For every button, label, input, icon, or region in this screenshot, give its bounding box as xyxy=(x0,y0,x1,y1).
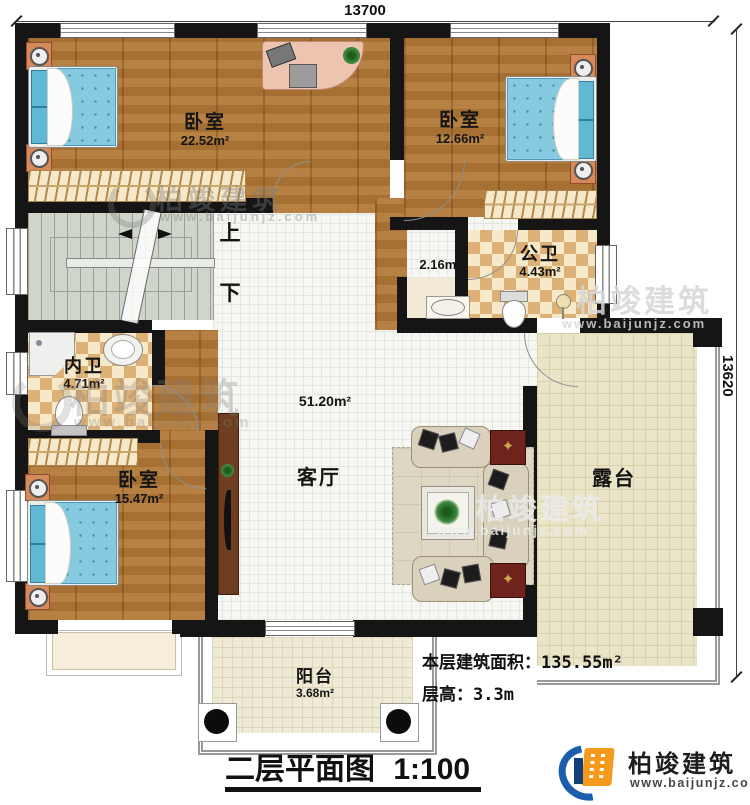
title-underline xyxy=(225,787,481,792)
public-bath-name: 公卫 xyxy=(485,244,595,265)
window xyxy=(6,352,28,395)
wall xyxy=(15,620,58,634)
nightstand-icon xyxy=(25,474,50,501)
wall xyxy=(597,23,610,245)
balcony-name: 阳台 xyxy=(283,667,347,687)
window xyxy=(6,490,28,582)
end-table-icon: ✦ xyxy=(490,430,526,465)
wall xyxy=(390,23,404,160)
living-name-label: 客厅 xyxy=(286,467,352,490)
bedroom1-area: 22.52m² xyxy=(150,134,260,149)
bedroom2-label: 卧室 12.66m² xyxy=(405,110,515,147)
wardrobe-icon xyxy=(28,438,138,466)
tv-icon xyxy=(224,490,231,550)
wall xyxy=(390,217,468,230)
window xyxy=(6,228,28,295)
bay-window-seat xyxy=(52,632,176,670)
brand-url: www.baijunjz.com xyxy=(630,776,750,790)
wall-column xyxy=(693,608,723,636)
column-icon xyxy=(380,703,419,742)
bedroom1-label: 卧室 22.52m² xyxy=(150,112,260,149)
stairs-arrow-right-icon xyxy=(158,229,172,239)
plant-icon xyxy=(434,499,460,525)
stairs-up-label: 上 xyxy=(218,222,242,246)
wardrobe-icon xyxy=(484,190,597,219)
floor-area-value: 135.55m² xyxy=(541,653,623,673)
floor-height-line: 层高：3.3m xyxy=(422,680,514,705)
stairs-arrow-left-icon xyxy=(118,229,132,239)
dimension-line-right xyxy=(736,30,737,678)
plant-icon xyxy=(343,47,360,64)
floor-area-label: 本层建筑面积： xyxy=(422,653,541,672)
window xyxy=(265,621,355,636)
bedroom3-area: 15.47m² xyxy=(84,492,194,507)
wall xyxy=(152,330,165,385)
private-bath-label: 内卫 4.71m² xyxy=(29,356,139,392)
balcony-label: 阳台 3.68m² xyxy=(283,667,347,700)
balcony-area: 3.68m² xyxy=(283,687,347,701)
brand-building-icon xyxy=(581,748,614,786)
nightstand-icon xyxy=(25,583,50,610)
floor-area-line: 本层建筑面积：135.55m² xyxy=(422,648,623,673)
public-bath-label: 公卫 4.43m² xyxy=(485,244,595,280)
wall xyxy=(353,620,537,637)
private-bath-name: 内卫 xyxy=(29,356,139,377)
floor-height-value: 3.3m xyxy=(473,685,514,705)
toilet-icon xyxy=(55,396,83,428)
plan-title-scale: 1:100 xyxy=(393,753,470,786)
floor-plan: 13700 13620 xyxy=(0,0,750,805)
wall xyxy=(205,430,218,620)
wash-basin-icon xyxy=(431,299,465,316)
living-area-label: 51.20m² xyxy=(275,393,375,409)
wall-column xyxy=(693,318,722,347)
plant-icon xyxy=(221,464,234,477)
wardrobe-icon xyxy=(28,170,246,202)
brand-name: 柏竣建筑 xyxy=(628,744,736,779)
dimension-line-top xyxy=(15,21,715,22)
brand-building-icon xyxy=(574,758,583,784)
bedroom3-name: 卧室 xyxy=(84,470,194,492)
dimension-right-value: 13620 xyxy=(719,355,736,397)
wall xyxy=(365,23,450,38)
terrace-label: 露台 xyxy=(581,468,647,491)
private-bath-area: 4.71m² xyxy=(29,377,139,392)
plan-title-text: 二层平面图 xyxy=(225,753,375,786)
window xyxy=(60,23,175,38)
shower-head-icon xyxy=(36,340,42,346)
plan-title: 二层平面图 1:100 xyxy=(225,744,505,788)
sofa-pillow-icon xyxy=(462,564,482,584)
monitor-icon xyxy=(289,64,317,88)
stairs-down-label: 下 xyxy=(218,282,242,306)
nightstand-icon xyxy=(26,144,52,172)
toilet-tank-icon xyxy=(51,425,87,436)
brand-logo: 柏竣建筑 www.baijunjz.com xyxy=(556,740,750,800)
sofa-pillow-icon xyxy=(488,529,508,549)
floor-height-label: 层高： xyxy=(422,685,473,704)
window xyxy=(595,245,617,304)
wash-area-label: 2.16m² xyxy=(402,258,478,273)
wall xyxy=(580,318,693,333)
dimension-top-value: 13700 xyxy=(320,2,410,19)
window xyxy=(450,23,559,38)
wall xyxy=(172,620,200,634)
bedroom2-area: 12.66m² xyxy=(405,132,515,147)
wash-area-value: 2.16m² xyxy=(402,258,478,273)
column-icon xyxy=(198,703,237,742)
bedroom2-name: 卧室 xyxy=(405,110,515,132)
public-bath-area: 4.43m² xyxy=(485,265,595,280)
wall xyxy=(173,23,257,38)
window xyxy=(257,23,367,38)
bedroom1-name: 卧室 xyxy=(150,112,260,134)
bedroom3-label: 卧室 15.47m² xyxy=(84,470,194,507)
end-table-icon: ✦ xyxy=(490,563,526,598)
drain-stem-icon xyxy=(562,307,564,319)
